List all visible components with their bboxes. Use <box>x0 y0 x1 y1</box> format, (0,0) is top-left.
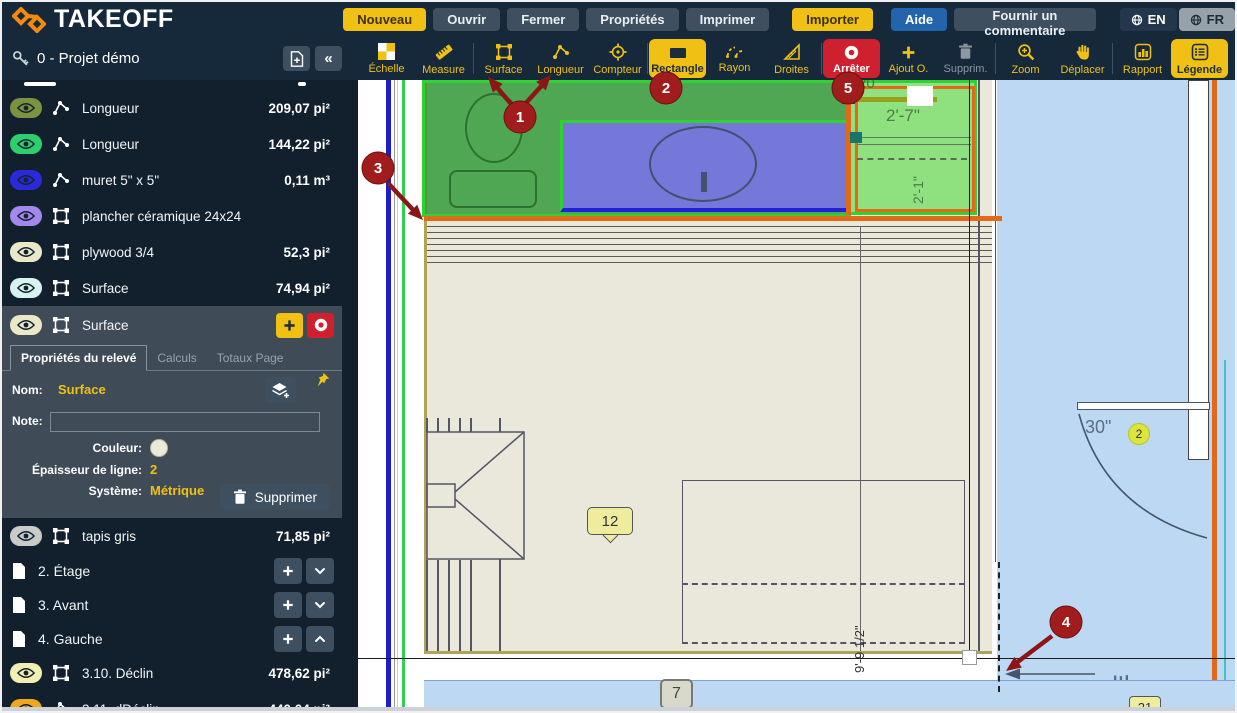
item-row-longueur-2[interactable]: Longueur 144,22 pi² <box>2 126 342 162</box>
key-icon <box>12 50 29 67</box>
teal-marker-square <box>850 132 862 143</box>
tool-surface[interactable]: Surface <box>475 39 532 78</box>
eye-icon <box>17 174 35 186</box>
count-marker-2: 2 <box>1128 423 1150 445</box>
plan-canvas[interactable]: 20 2'-7" 2'-1" 12 30" 2 MEZZANINE <box>358 80 1235 711</box>
report-chart-icon <box>1134 43 1152 61</box>
tool-label: Déplacer <box>1060 64 1104 76</box>
page-label: 3. Avant <box>38 597 88 613</box>
page-icon <box>12 563 26 579</box>
nom-label: Nom: <box>12 383 43 397</box>
trash-icon <box>233 489 247 505</box>
orange-line-top <box>424 216 1002 221</box>
lang-en-label: EN <box>1148 12 1166 27</box>
tab-totaux-page[interactable]: Totaux Page <box>207 346 294 370</box>
green-reference-line <box>402 80 405 711</box>
item-row-surface-selected[interactable]: Surface <box>2 306 342 344</box>
item-value: 74,94 pi² <box>276 281 330 296</box>
plan-marker-12: 12 <box>587 507 633 535</box>
imprimer-button[interactable]: Imprimer <box>686 8 770 31</box>
item-row-plywood[interactable]: plywood 3/4 52,3 pi² <box>2 234 342 270</box>
commentaire-button[interactable]: Fournir un commentaire <box>954 8 1095 31</box>
dimension-arrow <box>1003 666 1103 682</box>
color-swatch[interactable] <box>150 439 168 457</box>
selection-handle[interactable] <box>962 650 977 665</box>
tool-label: Longueur <box>537 64 584 76</box>
visibility-toggle[interactable] <box>10 242 42 262</box>
item-value: 52,3 pi² <box>283 245 330 260</box>
tool-rayon[interactable]: Rayon <box>706 39 763 78</box>
chevron-up-icon <box>314 635 326 643</box>
item-value: 478,62 pi² <box>268 666 330 681</box>
clipped-row-remnant <box>24 82 56 86</box>
app-logo-text: TAKEOFF <box>54 5 174 34</box>
tool-compteur[interactable]: Compteur <box>589 39 646 78</box>
nouveau-button[interactable]: Nouveau <box>343 8 426 31</box>
item-name: muret 5" x 5" <box>82 173 159 188</box>
tab-proprietes-releve[interactable]: Propriétés du relevé <box>10 345 147 371</box>
tool-label: Droites <box>774 64 809 76</box>
tool-label: Rectangle <box>651 63 704 75</box>
tool-label: Zoom <box>1011 64 1039 76</box>
set-square-icon <box>783 43 801 61</box>
tool-deplacer[interactable]: Déplacer <box>1054 39 1111 78</box>
gray-reference-line <box>397 80 398 711</box>
dim-label-2-1: 2'-1" <box>910 142 926 204</box>
item-name: Surface <box>82 281 129 296</box>
orange-line-right <box>1212 80 1217 711</box>
lang-fr-label: FR <box>1207 12 1224 27</box>
stop-measure-button[interactable] <box>307 313 334 338</box>
file-actions: Nouveau Ouvrir Fermer Propriétés Imprime… <box>343 8 1095 31</box>
ouvrir-button[interactable]: Ouvrir <box>433 8 500 31</box>
room-dashed-line <box>682 583 965 585</box>
interior-wall-line <box>978 80 980 654</box>
tab-calculs[interactable]: Calculs <box>147 346 206 370</box>
layers-add-button[interactable] <box>265 377 296 403</box>
crosshair-horizontal <box>358 658 1235 659</box>
tool-label: Rapport <box>1123 64 1162 76</box>
item-name: 3.10. Déclin <box>82 666 153 681</box>
surface-polygon-icon <box>495 43 513 61</box>
toilet-tank-outline <box>449 170 537 208</box>
toolbar-divider <box>821 43 822 74</box>
page-icon <box>12 597 26 613</box>
plus-icon <box>282 599 294 611</box>
marker-label: 7 <box>672 685 681 703</box>
tool-zoom[interactable]: Zoom <box>997 39 1054 78</box>
toolbar-divider <box>995 43 996 74</box>
fermer-button[interactable]: Fermer <box>507 8 579 31</box>
item-row-declin-1[interactable]: 3.10. Déclin 478,62 pi² <box>2 655 342 691</box>
surface-polygon-icon <box>52 664 70 682</box>
eye-icon <box>17 138 35 150</box>
toolbar-divider <box>1112 43 1113 74</box>
zone-border-line <box>995 80 996 562</box>
page-add-button[interactable] <box>274 626 302 652</box>
item-value: 209,07 pi² <box>268 101 330 116</box>
importer-button[interactable]: Importer <box>792 8 873 31</box>
toolbar-divider <box>647 43 648 74</box>
stairs-landing-outline <box>426 430 526 562</box>
lang-fr-button[interactable]: FR <box>1179 8 1235 31</box>
stairs-hatch-bottom <box>426 560 478 652</box>
surface-polygon-icon <box>52 243 70 261</box>
bathtub-faucet <box>701 172 707 192</box>
hand-icon <box>1074 43 1092 61</box>
tool-label: Légende <box>1177 64 1222 76</box>
add-measure-button[interactable] <box>276 313 303 338</box>
properties-tabs: Propriétés du relevé Calculs Totaux Page <box>2 344 342 371</box>
tool-label: Compteur <box>593 64 641 76</box>
systeme-label: Système: <box>2 484 142 498</box>
plus-icon <box>901 45 916 60</box>
visibility-toggle[interactable] <box>10 206 42 226</box>
counter-target-icon <box>609 43 627 61</box>
surface-polygon-icon <box>52 527 70 545</box>
length-icon <box>52 135 70 153</box>
visibility-toggle[interactable] <box>10 134 42 154</box>
toolbar-divider <box>473 43 474 74</box>
joist-hatch <box>427 226 992 266</box>
tool-label: Supprim. <box>943 63 987 75</box>
surface-polygon-icon <box>52 279 70 297</box>
item-name: plywood 3/4 <box>82 245 154 260</box>
tool-label: Surface <box>485 64 523 76</box>
count-label: 2 <box>1136 427 1143 441</box>
selected-item-panel: Surface Propriétés du relevé Calculs Tot… <box>2 306 342 518</box>
plan-marker-7: 7 <box>660 679 693 709</box>
supprimer-label: Supprimer <box>255 490 317 505</box>
proprietes-button[interactable]: Propriétés <box>586 8 678 31</box>
item-value: 144,22 pi² <box>268 137 330 152</box>
item-row-muret[interactable]: muret 5" x 5" 0,11 m³ <box>2 162 342 198</box>
eye-icon <box>17 282 35 294</box>
project-title: 0 - Projet démo <box>37 50 140 67</box>
tool-label: Ajout O. <box>889 63 929 75</box>
chevron-down-icon <box>314 601 326 609</box>
eye-icon <box>17 319 35 331</box>
bottom-scrollbar-strip[interactable] <box>2 707 1235 711</box>
measure-toolbar: Échelle Measure Surface Longueur Compteu… <box>358 37 1235 80</box>
project-header: 0 - Projet démo « <box>2 37 358 80</box>
item-row-plancher[interactable]: plancher céramique 24x24 <box>2 198 342 234</box>
marker-label: 12 <box>602 513 619 530</box>
stop-icon <box>844 45 859 60</box>
plus-icon <box>282 565 294 577</box>
bottom-blue-strip <box>424 680 1235 710</box>
radius-icon <box>725 43 745 59</box>
plus-icon <box>282 633 294 645</box>
stop-icon <box>314 318 328 332</box>
tool-longueur[interactable]: Longueur <box>532 39 589 78</box>
visibility-toggle[interactable] <box>10 170 42 190</box>
page-expand-button[interactable] <box>306 592 334 618</box>
aide-button[interactable]: Aide <box>891 8 947 31</box>
tool-label: Measure <box>422 64 465 76</box>
item-value: 71,85 pi² <box>276 529 330 544</box>
takeoff-sidebar: Longueur 209,07 pi² Longueur 144,22 pi² … <box>2 80 358 711</box>
app-logo: TAKEOFF <box>12 5 193 34</box>
page-row-etage[interactable]: 2. Étage <box>2 554 342 588</box>
item-name: Longueur <box>82 137 139 152</box>
item-name: Longueur <box>82 101 139 116</box>
note-input[interactable] <box>50 412 320 432</box>
document-plus-icon <box>290 51 304 67</box>
visibility-toggle[interactable] <box>10 315 42 335</box>
tool-droites[interactable]: Droites <box>763 39 820 78</box>
magnifier-plus-icon <box>1017 43 1035 61</box>
globe-icon <box>1190 14 1202 26</box>
toilet-bowl-outline <box>465 93 523 163</box>
dim-label-30: 30" <box>1085 417 1111 438</box>
scale-icon <box>378 43 395 60</box>
page-add-button[interactable] <box>274 558 302 584</box>
language-switcher: EN FR <box>1120 8 1235 31</box>
supprimer-button[interactable]: Supprimer <box>220 484 330 510</box>
page-row-gauche[interactable]: 4. Gauche <box>2 622 342 656</box>
item-row-tapis[interactable]: tapis gris 71,85 pi² <box>2 518 342 554</box>
note-label: Note: <box>12 414 43 428</box>
tool-rapport[interactable]: Rapport <box>1114 39 1171 78</box>
page-add-button[interactable] <box>274 592 302 618</box>
length-path-icon <box>552 43 570 61</box>
plus-icon <box>283 319 296 332</box>
length-icon <box>52 171 70 189</box>
eye-icon <box>17 102 35 114</box>
crosshair-vertical <box>969 80 970 658</box>
app-window: TAKEOFF Nouveau Ouvrir Fermer Propriétés… <box>0 0 1237 713</box>
door-header <box>1077 402 1210 410</box>
visibility-toggle[interactable] <box>10 98 42 118</box>
dim-label-9-9: 9'-9 1/2" <box>852 597 867 673</box>
length-icon <box>52 99 70 117</box>
tool-rectangle-active[interactable]: Rectangle <box>649 39 706 78</box>
page-collapse-button[interactable] <box>306 626 334 652</box>
item-name: tapis gris <box>82 529 136 544</box>
item-name: Surface <box>82 318 129 333</box>
page-icon <box>12 631 26 647</box>
takeoff-logo-icon <box>12 7 46 33</box>
pin-icon[interactable] <box>315 372 330 390</box>
systeme-value[interactable]: Métrique <box>150 483 204 498</box>
properties-form: Nom: Surface Note: Couleur: Épaisseur de… <box>2 371 342 518</box>
tool-label: Rayon <box>719 62 751 74</box>
epaisseur-label: Épaisseur de ligne: <box>2 463 142 477</box>
wall-notch <box>907 86 933 106</box>
blue-reference-line <box>386 80 391 711</box>
surface-polygon-icon <box>52 207 70 225</box>
clipped-row-remnant <box>298 82 306 86</box>
tool-legende-active[interactable]: Légende <box>1171 39 1228 78</box>
item-name: plancher céramique 24x24 <box>82 209 241 224</box>
eye-icon <box>17 530 35 542</box>
dashed-boundary-line <box>998 562 1000 692</box>
gray-reference-line <box>394 80 395 711</box>
visibility-toggle[interactable] <box>10 526 42 546</box>
dim-label-2-7: 2'-7" <box>886 106 920 126</box>
trash-icon <box>958 43 973 60</box>
epaisseur-value[interactable]: 2 <box>150 462 157 477</box>
rectangle-icon <box>668 46 688 60</box>
add-document-button[interactable] <box>283 46 310 71</box>
visibility-toggle[interactable] <box>10 278 42 298</box>
globe-icon <box>1131 14 1143 26</box>
surface-polygon-icon <box>52 316 70 334</box>
tool-supprim-disabled: Supprim. <box>937 39 994 78</box>
visibility-toggle[interactable] <box>10 663 42 683</box>
layers-plus-icon <box>271 382 290 399</box>
legend-list-icon <box>1191 43 1209 61</box>
tool-echelle[interactable]: Échelle <box>358 39 415 78</box>
eye-icon <box>17 246 35 258</box>
tool-label: Échelle <box>368 63 404 75</box>
nom-value[interactable]: Surface <box>58 382 106 397</box>
plan-bottom-edge <box>424 651 992 654</box>
tool-ajout[interactable]: Ajout O. <box>880 39 937 78</box>
top-bar: TAKEOFF Nouveau Ouvrir Fermer Propriétés… <box>2 2 1235 37</box>
page-row-avant[interactable]: 3. Avant <box>2 588 342 622</box>
collapse-sidebar-button[interactable]: « <box>315 46 342 71</box>
eye-icon <box>17 210 35 222</box>
item-value: 0,11 m³ <box>284 173 330 188</box>
toolbar-band: 0 - Projet démo « Échelle Measure Surfac… <box>2 37 1235 80</box>
page-label: 2. Étage <box>38 563 90 579</box>
item-row-surface-1[interactable]: Surface 74,94 pi² <box>2 270 342 306</box>
couleur-label: Couleur: <box>2 441 142 455</box>
page-label: 4. Gauche <box>38 631 103 647</box>
plan-line <box>857 137 971 138</box>
chevron-down-icon <box>314 567 326 575</box>
page-expand-button[interactable] <box>306 558 334 584</box>
tool-measure[interactable]: Measure <box>415 39 472 78</box>
item-row-longueur-1[interactable]: Longueur 209,07 pi² <box>2 90 342 126</box>
ruler-icon <box>434 43 454 61</box>
eye-icon <box>17 667 35 679</box>
room-outline <box>682 480 965 644</box>
tool-label: Arrêter <box>833 63 870 75</box>
tool-arreter[interactable]: Arrêter <box>823 39 880 78</box>
room-dashed-bottom <box>682 642 965 644</box>
lang-en-button[interactable]: EN <box>1120 8 1177 31</box>
blue-marker-square <box>842 93 855 104</box>
plan-label-20: 20 <box>858 80 875 92</box>
